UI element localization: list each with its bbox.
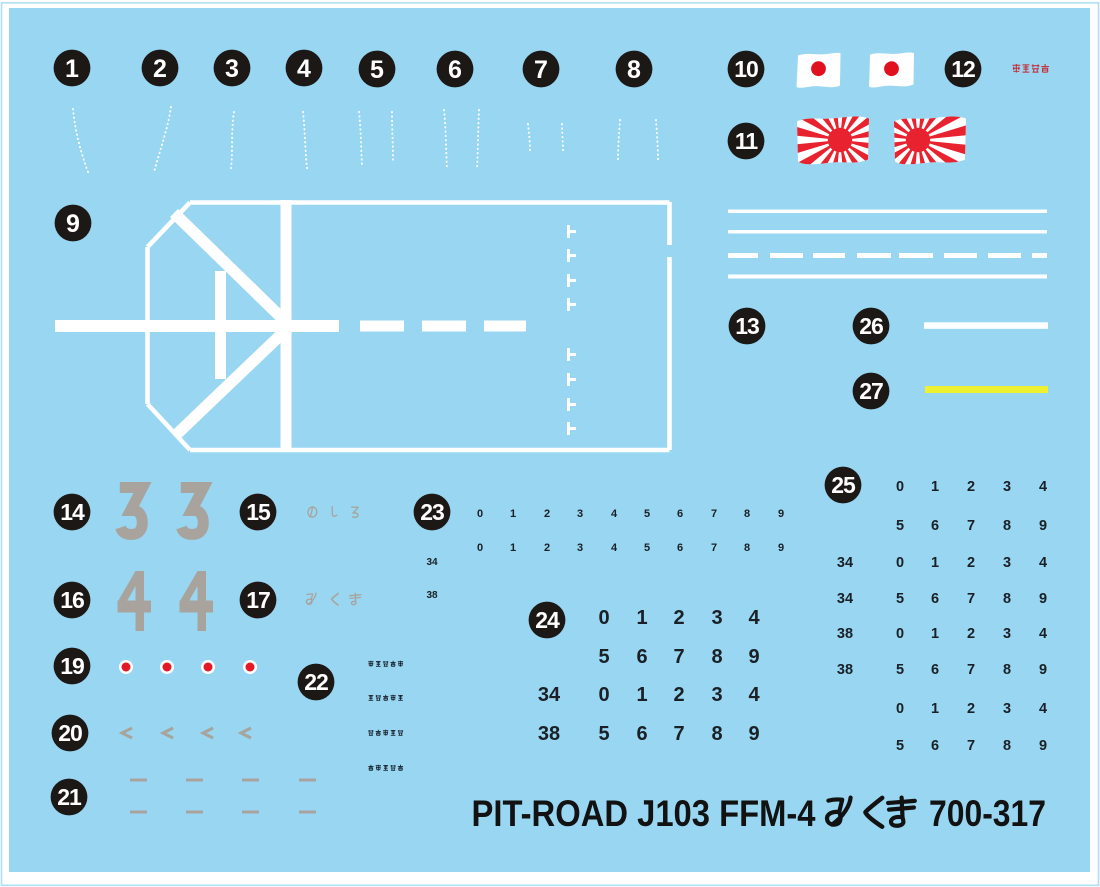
svg-text:6: 6	[931, 591, 939, 607]
svg-text:16: 16	[60, 587, 84, 613]
svg-text:19: 19	[60, 653, 84, 679]
svg-text:0: 0	[477, 508, 483, 520]
svg-text:5: 5	[896, 518, 904, 534]
svg-text:2: 2	[544, 542, 550, 554]
svg-text:26: 26	[859, 313, 883, 339]
svg-text:4: 4	[1039, 555, 1047, 571]
svg-text:1: 1	[65, 55, 79, 83]
svg-text:3: 3	[711, 607, 722, 629]
svg-text:7: 7	[967, 738, 975, 754]
svg-text:38: 38	[426, 590, 438, 601]
svg-text:2: 2	[967, 479, 975, 495]
svg-text:21: 21	[57, 784, 82, 810]
svg-text:14: 14	[60, 499, 85, 525]
svg-text:5: 5	[370, 56, 384, 84]
svg-text:1: 1	[510, 542, 516, 554]
svg-text:34: 34	[837, 591, 853, 607]
svg-text:8: 8	[744, 508, 750, 520]
svg-text:1: 1	[931, 479, 939, 495]
svg-text:5: 5	[598, 646, 609, 668]
svg-text:6: 6	[636, 646, 647, 668]
svg-text:20: 20	[58, 720, 82, 746]
svg-text:12: 12	[951, 56, 975, 82]
svg-text:2: 2	[544, 508, 550, 520]
svg-text:1: 1	[931, 555, 939, 571]
svg-text:3: 3	[577, 542, 583, 554]
svg-text:4: 4	[1039, 626, 1047, 642]
svg-text:9: 9	[778, 508, 784, 520]
svg-text:4: 4	[1039, 701, 1047, 717]
svg-text:2: 2	[673, 684, 684, 706]
svg-text:1: 1	[931, 626, 939, 642]
svg-text:0: 0	[896, 555, 904, 571]
svg-text:3: 3	[1003, 701, 1011, 717]
svg-text:34: 34	[426, 557, 438, 568]
svg-text:8: 8	[711, 723, 722, 745]
svg-text:3: 3	[1003, 479, 1011, 495]
svg-text:5: 5	[896, 738, 904, 754]
svg-text:8: 8	[1003, 518, 1011, 534]
svg-text:8: 8	[1003, 738, 1011, 754]
svg-text:9: 9	[748, 646, 759, 668]
svg-text:5: 5	[644, 542, 650, 554]
svg-text:15: 15	[246, 499, 271, 525]
svg-text:23: 23	[420, 499, 444, 525]
svg-text:0: 0	[598, 607, 609, 629]
svg-text:700-317: 700-317	[929, 792, 1046, 834]
svg-text:0: 0	[477, 542, 483, 554]
svg-text:2: 2	[967, 701, 975, 717]
svg-text:5: 5	[598, 723, 609, 745]
svg-text:17: 17	[246, 587, 270, 613]
svg-text:34: 34	[837, 555, 853, 571]
svg-text:5: 5	[644, 508, 650, 520]
svg-text:PIT-ROAD J103 FFM-4: PIT-ROAD J103 FFM-4	[472, 792, 816, 834]
svg-text:6: 6	[931, 662, 939, 678]
svg-text:3: 3	[1003, 626, 1011, 642]
svg-text:3: 3	[1003, 555, 1011, 571]
svg-text:6: 6	[931, 518, 939, 534]
svg-text:38: 38	[837, 626, 853, 642]
svg-text:8: 8	[1003, 591, 1011, 607]
svg-text:4: 4	[611, 542, 618, 554]
svg-text:11: 11	[735, 128, 759, 154]
svg-text:3: 3	[711, 684, 722, 706]
svg-text:7: 7	[534, 56, 548, 84]
svg-text:8: 8	[627, 56, 641, 84]
svg-text:3: 3	[225, 55, 239, 83]
svg-text:2: 2	[967, 555, 975, 571]
svg-text:0: 0	[896, 701, 904, 717]
svg-text:34: 34	[538, 684, 561, 706]
svg-text:2: 2	[153, 55, 167, 83]
svg-text:9: 9	[66, 210, 80, 238]
svg-text:7: 7	[711, 542, 717, 554]
svg-text:3: 3	[577, 508, 583, 520]
svg-text:4: 4	[297, 55, 311, 83]
svg-text:6: 6	[636, 723, 647, 745]
svg-text:7: 7	[967, 662, 975, 678]
svg-text:6: 6	[677, 508, 683, 520]
svg-text:6: 6	[448, 56, 462, 84]
svg-text:9: 9	[778, 542, 784, 554]
svg-text:8: 8	[744, 542, 750, 554]
svg-text:1: 1	[931, 701, 939, 717]
svg-text:4: 4	[1039, 479, 1047, 495]
svg-text:38: 38	[538, 723, 560, 745]
svg-text:1: 1	[636, 607, 647, 629]
svg-text:38: 38	[837, 662, 853, 678]
svg-text:4: 4	[748, 684, 760, 706]
svg-text:9: 9	[748, 723, 759, 745]
svg-text:9: 9	[1039, 738, 1047, 754]
svg-text:25: 25	[831, 472, 856, 498]
svg-text:2: 2	[673, 607, 684, 629]
svg-text:0: 0	[598, 684, 609, 706]
svg-text:0: 0	[896, 479, 904, 495]
svg-text:6: 6	[931, 738, 939, 754]
svg-text:4: 4	[611, 508, 618, 520]
svg-text:2: 2	[967, 626, 975, 642]
svg-text:4: 4	[748, 607, 760, 629]
svg-text:5: 5	[896, 662, 904, 678]
svg-text:24: 24	[535, 607, 560, 633]
svg-text:10: 10	[734, 56, 758, 82]
svg-text:7: 7	[967, 591, 975, 607]
svg-text:22: 22	[304, 669, 328, 695]
svg-text:7: 7	[967, 518, 975, 534]
svg-text:1: 1	[510, 508, 516, 520]
svg-text:7: 7	[673, 723, 684, 745]
svg-text:8: 8	[1003, 662, 1011, 678]
svg-text:5: 5	[896, 591, 904, 607]
svg-text:7: 7	[711, 508, 717, 520]
svg-text:0: 0	[896, 626, 904, 642]
svg-text:7: 7	[673, 646, 684, 668]
svg-text:9: 9	[1039, 518, 1047, 534]
svg-text:6: 6	[677, 542, 683, 554]
svg-text:9: 9	[1039, 591, 1047, 607]
svg-text:9: 9	[1039, 662, 1047, 678]
svg-text:13: 13	[735, 313, 759, 339]
svg-text:1: 1	[636, 684, 647, 706]
svg-text:27: 27	[859, 378, 883, 404]
svg-text:8: 8	[711, 646, 722, 668]
